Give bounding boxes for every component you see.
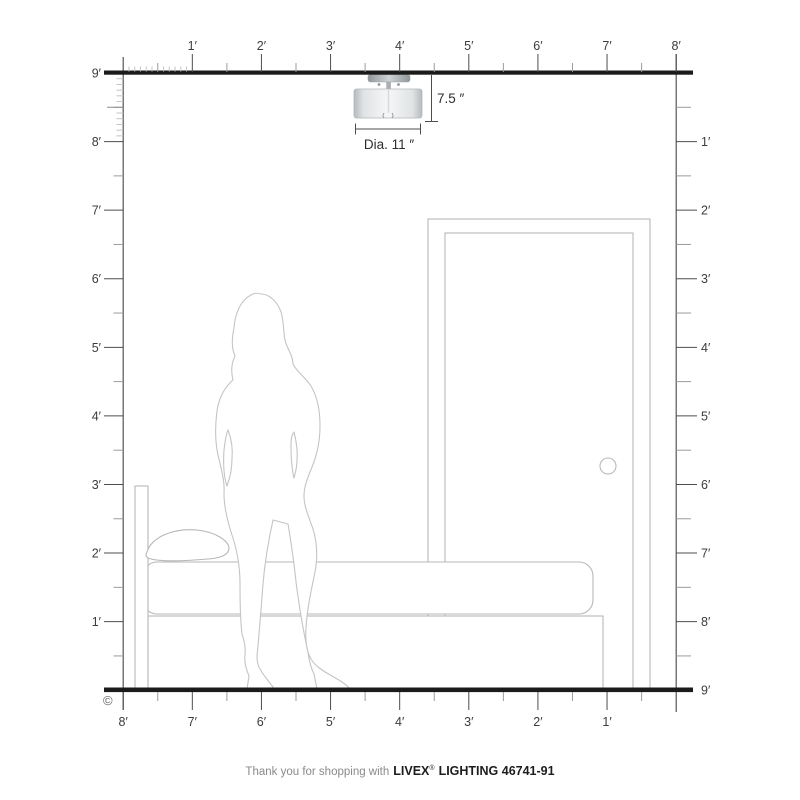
top-ruler-label: 7′ [602,39,612,53]
footer-brand: LIVEX [393,764,429,778]
bottom-ruler-label: 2′ [533,715,543,729]
right-ruler-label: 9′ [701,684,711,698]
copyright-symbol: © [103,693,113,708]
right-ruler-label: 7′ [701,547,711,561]
top-ruler-label: 2′ [257,39,267,53]
right-ruler-label: 6′ [701,478,711,492]
left-ruler-label: 6′ [92,272,102,286]
bottom-ruler-label: 6′ [257,715,267,729]
dimension-diagram: 1′2′3′4′5′6′7′8′9′8′7′6′5′4′3′2′1′1′2′3′… [0,0,800,800]
fixture-diameter-annotation: Dia. 11 ″ [350,138,428,152]
canopy-screw [397,83,400,86]
left-ruler-label: 3′ [92,478,102,492]
light-fixture [354,74,422,118]
top-ruler-label: 5′ [464,39,474,53]
left-ruler-label: 2′ [92,547,102,561]
bottom-ruler-label: 7′ [188,715,198,729]
pillow [146,530,229,561]
footer-product: LIGHTING 46741-91 [439,764,555,778]
registered-trademark-icon: ® [429,765,434,772]
left-ruler-label: 9′ [92,67,102,81]
right-ruler-label: 3′ [701,272,711,286]
top-ruler-label: 4′ [395,39,405,53]
right-ruler-label: 5′ [701,409,711,423]
right-ruler-label: 2′ [701,204,711,218]
fixture-height-annotation: 7.5 ″ [437,92,464,106]
top-ruler-label: 1′ [188,39,198,53]
headboard-post [135,486,148,690]
right-ruler-label: 1′ [701,135,711,149]
left-ruler-label: 8′ [92,135,102,149]
top-ruler-label: 6′ [533,39,543,53]
mattress [143,562,593,614]
bottom-ruler-label: 1′ [602,715,612,729]
scale-drawing: 1′2′3′4′5′6′7′8′9′8′7′6′5′4′3′2′1′1′2′3′… [0,0,800,800]
door-knob [600,458,616,474]
footer-text: Thank you for shopping withLIVEX®LIGHTIN… [0,764,800,778]
left-ruler-label: 1′ [92,615,102,629]
canopy-screw [378,83,381,86]
left-ruler-label: 7′ [92,204,102,218]
fixture-canopy [368,75,410,83]
bottom-ruler-label: 5′ [326,715,336,729]
top-ruler-label: 8′ [672,39,682,53]
right-ruler-label: 8′ [701,615,711,629]
top-ruler-label: 3′ [326,39,336,53]
left-ruler-label: 4′ [92,409,102,423]
bed-outline [135,486,603,690]
bottom-ruler-label: 4′ [395,715,405,729]
right-ruler-label: 4′ [701,341,711,355]
bed-base [148,616,603,690]
bottom-ruler-label: 8′ [119,715,129,729]
footer-thanks: Thank you for shopping with [245,766,389,778]
left-ruler-label: 5′ [92,341,102,355]
bottom-ruler-label: 3′ [464,715,474,729]
floor-line [104,688,693,693]
